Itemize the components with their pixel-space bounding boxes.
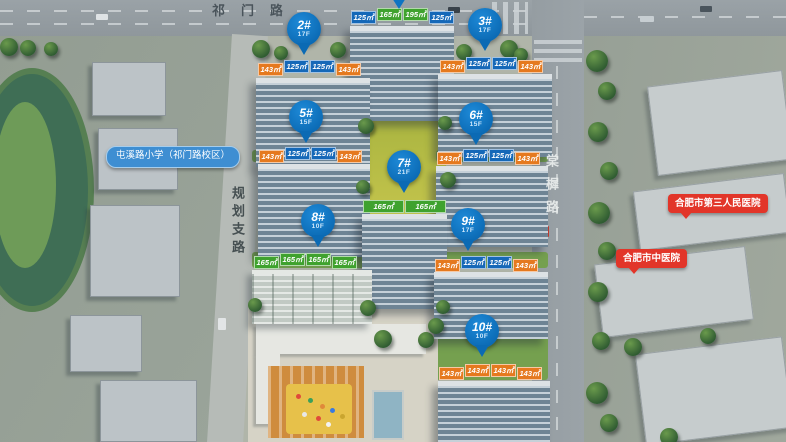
building-block (100, 380, 197, 442)
area-label-row-9: 143㎡ 125㎡ 125㎡ 143㎡ (435, 256, 538, 272)
area-label-row-6: 143㎡ 125㎡ 125㎡ 143㎡ (437, 149, 540, 165)
tower-10 (438, 381, 550, 442)
area-label: 125㎡ (311, 147, 336, 160)
tree (600, 414, 618, 432)
area-label: 125㎡ (489, 149, 514, 162)
tree (0, 38, 18, 56)
area-label: 143㎡ (491, 364, 516, 377)
pin-circle: 9# 17F (451, 208, 485, 242)
area-label: 143㎡ (513, 259, 538, 272)
area-label: 125㎡ (466, 57, 491, 70)
tree (436, 300, 450, 314)
area-label: 165㎡ (332, 256, 357, 269)
pin-floors: 21F (398, 169, 411, 177)
tree (356, 180, 370, 194)
tree (598, 242, 616, 260)
area-label: 195㎡ (403, 8, 428, 21)
building-pin-7[interactable]: 7# 21F (387, 150, 421, 184)
pin-number: 7# (397, 157, 410, 169)
area-label: 143㎡ (440, 60, 465, 73)
tree (586, 382, 608, 404)
tree (360, 300, 376, 316)
area-label: 143㎡ (518, 60, 543, 73)
tree (588, 282, 608, 302)
pin-number: 9# (461, 215, 474, 227)
pin-floors: 17F (298, 31, 311, 39)
building-pin-9[interactable]: 9# 17F (451, 208, 485, 242)
area-label: 143㎡ (437, 152, 462, 165)
tree (248, 298, 262, 312)
tree (660, 428, 678, 442)
area-label: 125㎡ (487, 256, 512, 269)
tree (418, 332, 434, 348)
area-label: 125㎡ (310, 60, 335, 73)
building-block (635, 336, 786, 442)
tree (330, 42, 346, 58)
area-label-row-2: 143㎡ 125㎡ 125㎡ 143㎡ (258, 60, 361, 76)
building-pin-2[interactable]: 2# 17F (287, 12, 321, 46)
area-label: 125㎡ (492, 57, 517, 70)
car (218, 318, 226, 330)
tree (700, 328, 716, 344)
kindergarten-building (256, 324, 426, 354)
area-label: 143㎡ (258, 63, 283, 76)
building-pin-5[interactable]: 5# 15F (289, 100, 323, 134)
tree (252, 40, 270, 58)
tree (592, 332, 610, 350)
road-name-north: 祁门路 (212, 0, 299, 19)
tree (588, 122, 608, 142)
pin-number: 5# (299, 107, 312, 119)
road-name-west: 规划支路 (228, 186, 247, 258)
building-pin-3[interactable]: 3# 17F (468, 8, 502, 42)
area-label: 165㎡ (306, 253, 331, 266)
area-label: 125㎡ (429, 11, 454, 24)
pin-number: 3# (478, 15, 491, 27)
building-block (92, 62, 166, 116)
area-label: 143㎡ (515, 152, 540, 165)
area-label: 143㎡ (465, 364, 490, 377)
tree (586, 50, 608, 72)
pin-number: 10# (472, 321, 492, 333)
pin-floors: 10F (476, 333, 489, 341)
pin-number: 2# (297, 19, 310, 31)
car (640, 16, 654, 22)
pin-circle: 8# 10F (301, 204, 335, 238)
building-pin-6[interactable]: 6# 15F (459, 102, 493, 136)
tree (20, 40, 36, 56)
tree (44, 42, 58, 56)
lane-line (584, 16, 786, 18)
pin-circle: 3# 17F (468, 8, 502, 42)
area-label: 165㎡ (405, 200, 446, 213)
lane-line (556, 66, 558, 442)
building-pin-10[interactable]: 10# 10F (465, 314, 499, 348)
pin-number: 8# (311, 211, 324, 223)
tree (428, 318, 444, 334)
playground-yard (286, 384, 352, 434)
car (700, 6, 712, 12)
pin-floors: 10F (312, 223, 325, 231)
poi-school-label[interactable]: 屯溪路小学（祁门路校区） (106, 146, 240, 168)
pin-number: 6# (469, 109, 482, 121)
pin-floors: 15F (300, 119, 313, 127)
tree (600, 162, 618, 180)
poi-hospital-third-label[interactable]: 合肥市第三人民医院 (668, 194, 768, 213)
pin-floors: 15F (470, 121, 483, 129)
north-tower-pin-tail (392, 0, 406, 16)
tower-3 (438, 74, 552, 157)
building-block (90, 205, 180, 297)
tree (374, 330, 392, 348)
area-label: 165㎡ (254, 256, 279, 269)
area-label: 143㎡ (439, 367, 464, 380)
aerial-masterplan-map: 125㎡ 165㎡ 195㎡ 125㎡ 143㎡ 125㎡ 125㎡ 143㎡ … (0, 0, 786, 442)
area-label: 143㎡ (435, 259, 460, 272)
area-label: 143㎡ (517, 367, 542, 380)
tree (624, 338, 642, 356)
building-block (70, 315, 142, 372)
car (96, 14, 108, 20)
pin-circle: 7# 21F (387, 150, 421, 184)
area-label-row-3: 143㎡ 125㎡ 125㎡ 143㎡ (440, 57, 543, 73)
area-label: 125㎡ (351, 11, 376, 24)
road-name-east: 棠樨路 (542, 154, 561, 223)
pin-circle: 10# 10F (465, 314, 499, 348)
area-label: 143㎡ (336, 63, 361, 76)
building-pin-8[interactable]: 8# 10F (301, 204, 335, 238)
poi-hospital-tcm-label[interactable]: 合肥市中医院 (616, 249, 687, 268)
pool-structure (372, 390, 404, 440)
area-label: 165㎡ (363, 200, 404, 213)
building-block (647, 70, 786, 176)
playground-equipment (296, 394, 301, 399)
area-label-row-10: 143㎡ 143㎡ 143㎡ 143㎡ (439, 364, 542, 380)
rowhouse-8 (252, 270, 372, 324)
pin-circle: 6# 15F (459, 102, 493, 136)
track-infield (0, 102, 56, 268)
tree (588, 202, 610, 224)
area-label-row-8: 165㎡ 165㎡ 165㎡ 165㎡ (254, 253, 357, 269)
pin-circle: 5# 15F (289, 100, 323, 134)
tree (358, 118, 374, 134)
pin-floors: 17F (479, 27, 492, 35)
area-label: 143㎡ (259, 150, 284, 163)
tree (440, 172, 456, 188)
tree (274, 46, 288, 60)
tree (598, 82, 616, 100)
pin-floors: 17F (462, 227, 475, 235)
pin-circle: 2# 17F (287, 12, 321, 46)
tree (438, 116, 452, 130)
area-label: 143㎡ (337, 150, 362, 163)
area-label: 165㎡ (280, 253, 305, 266)
